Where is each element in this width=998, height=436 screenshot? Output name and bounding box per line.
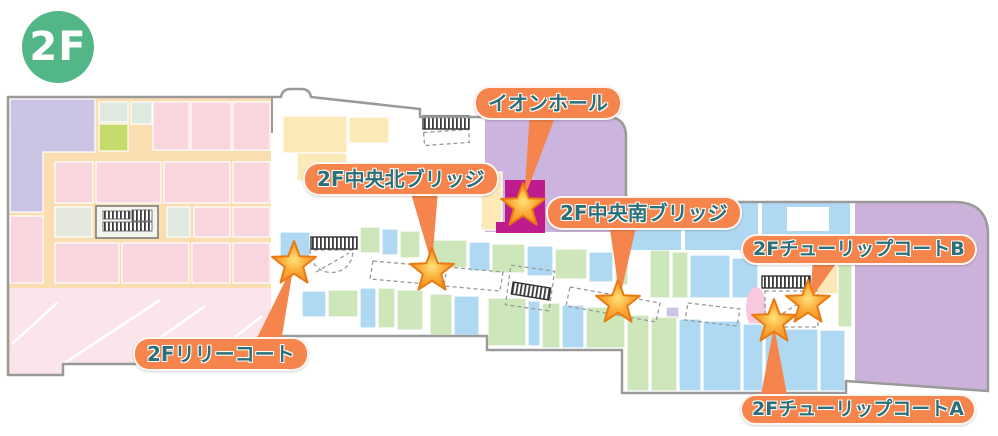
label-aeon-hall[interactable]: イオンホール — [474, 86, 622, 120]
floor-map-2f: 2F イオンホール 2F中央北ブリッジ 2F中央南ブリッジ 2Fチューリップコー… — [0, 0, 998, 436]
right-building — [855, 202, 988, 391]
label-lily-court[interactable]: 2Fリリーコート — [133, 337, 309, 371]
label-central-south-bridge[interactable]: 2F中央南ブリッジ — [546, 196, 742, 230]
label-tulip-court-b[interactable]: 2FチューリップコートB — [741, 234, 977, 265]
label-tulip-court-a[interactable]: 2FチューリップコートA — [740, 394, 976, 425]
elevator-icon — [96, 206, 158, 238]
escalator-icon — [762, 276, 810, 288]
escalator-icon — [311, 237, 357, 249]
label-central-north-bridge[interactable]: 2F中央北ブリッジ — [303, 162, 499, 196]
floor-badge: 2F — [22, 11, 94, 83]
